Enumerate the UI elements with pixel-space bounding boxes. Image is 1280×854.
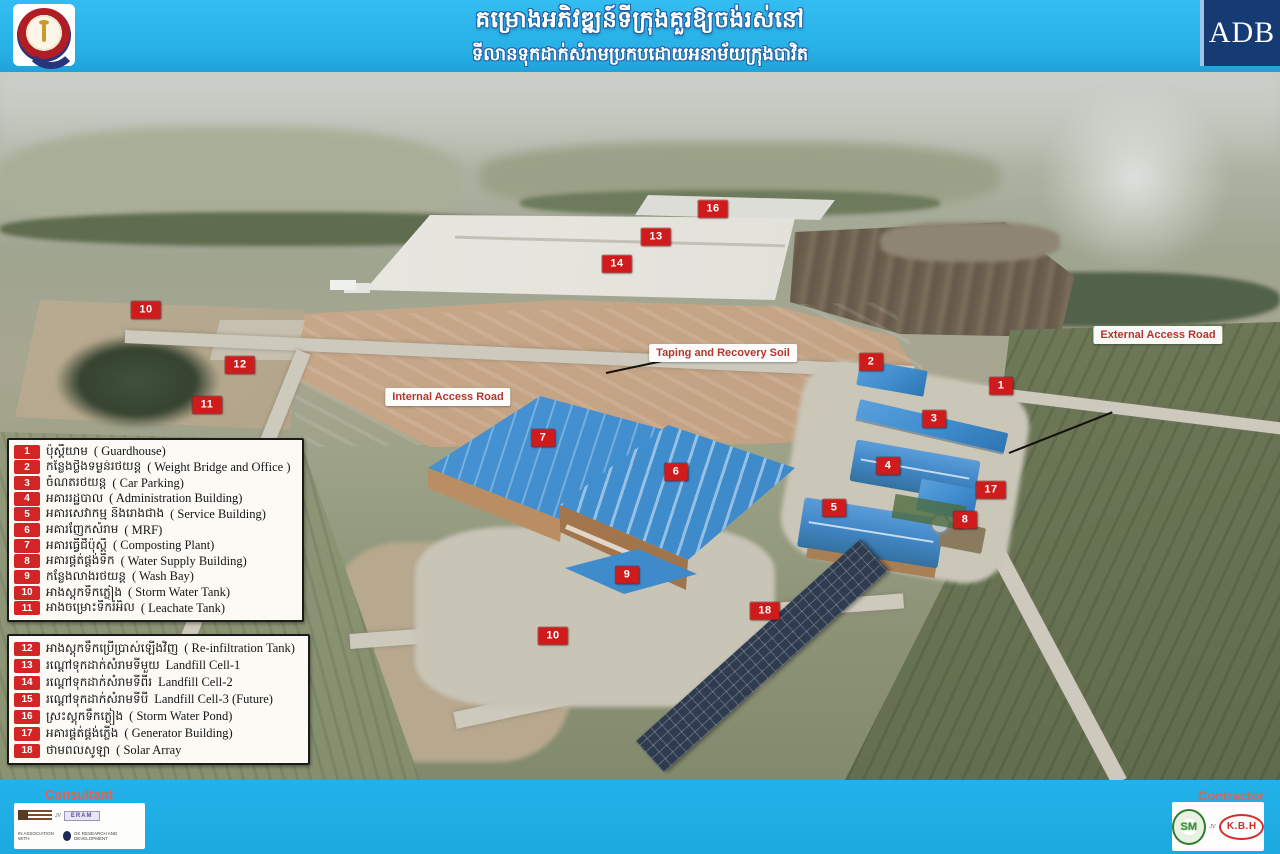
- contractor-logo-kbh: K.B.H: [1219, 814, 1264, 840]
- sm-logo-text: SM: [1181, 821, 1198, 833]
- legend-number-badge: 16: [14, 710, 40, 724]
- legend-number-badge: 15: [14, 693, 40, 707]
- footer-bar: Consultant JV ERAM IN ASSOCIATION WITH G…: [0, 780, 1280, 854]
- legend-khmer-text: អគារសេវាកម្ម និងរោងជាង: [46, 507, 164, 523]
- legend-item-15: 15រណ្តៅទុកដាក់សំរាមទីបីLandfill Cell-3 (…: [14, 691, 303, 708]
- legend-khmer-text: អគារផ្គត់ផ្គង់ភ្លើង: [46, 725, 118, 742]
- marker-1: 1: [990, 378, 1013, 395]
- marker-11: 11: [193, 397, 222, 414]
- marker-10: 10: [538, 628, 567, 645]
- legend-khmer-text: អគាររដ្ឋបាល: [46, 491, 103, 507]
- partner-circle-logo: [63, 831, 72, 841]
- legend-number-badge: 12: [14, 642, 40, 656]
- legend-number-badge: 1: [14, 445, 40, 459]
- legend-english-text: ( Wash Bay): [132, 569, 194, 584]
- jv-text: JV: [55, 813, 61, 819]
- label-taping-recovery-soil: Taping and Recovery Soil: [649, 344, 797, 362]
- legend-item-16: 16ស្រះស្តុកទឹកភ្លៀង( Storm Water Pond): [14, 708, 303, 725]
- legend-item-3: 3ចំណតរថយន្ត( Car Parking): [14, 475, 297, 491]
- poster-page: គម្រោងអភិវឌ្ឍន៍ទីក្រុងគួរឱ្យចង់រស់នៅ ទីល…: [0, 0, 1280, 854]
- marker-4: 4: [877, 458, 900, 475]
- legend-item-7: 7អគារធ្វើជីប៉ុស្តិ៍( Composting Plant): [14, 538, 297, 554]
- legend-item-12: 12អាងស្តុកទឹកប្រើប្រាស់ឡើងវិញ( Re-infilt…: [14, 640, 303, 657]
- legend-english-text: ( Weight Bridge and Office ): [147, 460, 290, 475]
- legend-khmer-text: អគារផ្គត់ផ្គង់ទឹក: [46, 553, 115, 569]
- marker-9: 9: [616, 567, 639, 584]
- legend-english-text: ( MRF): [124, 523, 162, 538]
- legend-khmer-text: ប៉ុស្តិ៍យាម: [46, 444, 88, 460]
- waste-dump-light-patch: [880, 222, 1060, 262]
- legend-box-1: 1ប៉ុស្តិ៍យាម( Guardhouse)2កន្លែងថ្លឹងទម្…: [7, 438, 304, 622]
- legend-english-text: ( Leachate Tank): [141, 601, 225, 616]
- label-internal-access-road: Internal Access Road: [385, 388, 510, 406]
- legend-number-badge: 17: [14, 727, 40, 741]
- legend-number-badge: 18: [14, 744, 40, 758]
- legend-khmer-text: អាងស្តុកទឹកភ្លៀង: [46, 585, 122, 601]
- legend-khmer-text: អាងចម្រោះទឹករំអិល: [46, 600, 135, 616]
- legend-number-badge: 14: [14, 676, 40, 690]
- legend-english-text: ( Service Building): [170, 507, 266, 522]
- legend-english-text: ( Guardhouse): [94, 444, 166, 459]
- legend-khmer-text: អគារញែកសំរាម: [46, 522, 118, 538]
- consultant-logos-box: JV ERAM IN ASSOCIATION WITH GK RESEARCH …: [14, 803, 145, 849]
- legend-number-badge: 11: [14, 601, 40, 615]
- legend-english-text: ( Solar Array: [116, 743, 181, 758]
- legend-item-6: 6អគារញែកសំរាម( MRF): [14, 522, 297, 538]
- legend-item-5: 5អគារសេវាកម្ម និងរោងជាង( Service Buildin…: [14, 507, 297, 523]
- marker-17: 17: [976, 482, 1005, 499]
- legend-item-8: 8អគារផ្គត់ផ្គង់ទឹក( Water Supply Buildin…: [14, 553, 297, 569]
- legend-khmer-text: កន្លែងលាងរថយន្ត: [46, 569, 126, 585]
- legend-item-9: 9កន្លែងលាងរថយន្ត( Wash Bay): [14, 569, 297, 585]
- header-bar: គម្រោងអភិវឌ្ឍន៍ទីក្រុងគួរឱ្យចង់រស់នៅ ទីល…: [0, 0, 1280, 72]
- legend-khmer-text: រណ្តៅទុកដាក់សំរាមទីបី: [46, 691, 148, 708]
- legend-number-badge: 6: [14, 523, 40, 537]
- legend-english-text: ( Composting Plant): [113, 538, 214, 553]
- legend-number-badge: 2: [14, 460, 40, 474]
- legend-english-text: Landfill Cell-3 (Future): [154, 692, 273, 707]
- legend-english-text: ( Storm Water Tank): [128, 585, 230, 600]
- legend-item-18: 18ថាមពលសូឡា( Solar Array: [14, 742, 303, 759]
- legend-item-10: 10អាងស្តុកទឹកភ្លៀង( Storm Water Tank): [14, 585, 297, 601]
- legend-item-17: 17អគារផ្គត់ផ្គង់ភ្លើង( Generator Buildin…: [14, 725, 303, 742]
- legend-english-text: ( Re-infiltration Tank): [184, 641, 295, 656]
- label-external-access-road: External Access Road: [1093, 326, 1222, 344]
- legend-number-badge: 8: [14, 554, 40, 568]
- smoke-plume: [1040, 82, 1230, 272]
- contractor-label: Contractor: [1198, 788, 1264, 803]
- legend-number-badge: 4: [14, 492, 40, 506]
- legend-english-text: ( Car Parking): [112, 476, 184, 491]
- legend-box-2: 12អាងស្តុកទឹកប្រើប្រាស់ឡើងវិញ( Re-infilt…: [7, 634, 310, 765]
- title-line2: ទីលានទុកដាក់សំរាមប្រកបដោយអនាម័យក្រុងបាវិ…: [0, 42, 1280, 69]
- legend-khmer-text: ចំណតរថយន្ត: [46, 475, 106, 491]
- contractor-logos-box: SM JV K.B.H: [1172, 802, 1264, 851]
- marker-6: 6: [665, 464, 688, 481]
- marker-16: 16: [698, 201, 727, 218]
- legend-khmer-text: រណ្តៅទុកដាក់សំរាមទីពីរ: [46, 674, 152, 691]
- legend-khmer-text: កន្លែងថ្លឹងទម្ងន់រថយន្ត: [46, 460, 141, 476]
- marker-12: 12: [225, 357, 254, 374]
- legend-english-text: ( Storm Water Pond): [129, 709, 232, 724]
- legend-number-badge: 13: [14, 659, 40, 673]
- small-structures: [330, 280, 356, 290]
- legend-number-badge: 5: [14, 507, 40, 521]
- adb-logo: ADB: [1200, 0, 1280, 66]
- legend-number-badge: 9: [14, 570, 40, 584]
- legend-item-13: 13រណ្តៅទុកដាក់សំរាមទីមួយLandfill Cell-1: [14, 657, 303, 674]
- consultant-logos-row2: IN ASSOCIATION WITH GK RESEARCH AND DEVE…: [18, 826, 141, 846]
- legend-number-badge: 3: [14, 476, 40, 490]
- contractor-logo-sm: SM: [1172, 809, 1206, 845]
- marker-7: 7: [532, 430, 555, 447]
- legend-english-text: Landfill Cell-1: [166, 658, 241, 673]
- project-titles: គម្រោងអភិវឌ្ឍន៍ទីក្រុងគួរឱ្យចង់រស់នៅ ទីល…: [0, 6, 1280, 69]
- legend-item-1: 1ប៉ុស្តិ៍យាម( Guardhouse): [14, 444, 297, 460]
- tree-clump: [55, 334, 220, 429]
- partner-name-text: GK RESEARCH AND DEVELOPMENT: [74, 831, 141, 841]
- marker-2: 2: [860, 354, 883, 371]
- legend-item-14: 14រណ្តៅទុកដាក់សំរាមទីពីរLandfill Cell-2: [14, 674, 303, 691]
- marker-13: 13: [641, 229, 670, 246]
- legend-item-11: 11អាងចម្រោះទឹករំអិល( Leachate Tank): [14, 600, 297, 616]
- consultant-logo-1: [18, 810, 52, 822]
- legend-khmer-text: អគារធ្វើជីប៉ុស្តិ៍: [46, 538, 107, 554]
- marker-10: 10: [131, 302, 160, 319]
- legend-khmer-text: អាងស្តុកទឹកប្រើប្រាស់ឡើងវិញ: [46, 640, 178, 657]
- consultant-logo-2: ERAM: [64, 811, 100, 821]
- legend-khmer-text: ស្រះស្តុកទឹកភ្លៀង: [46, 708, 123, 725]
- legend-english-text: Landfill Cell-2: [158, 675, 233, 690]
- marker-14: 14: [602, 256, 631, 273]
- kbh-logo-text: K.B.H: [1227, 821, 1257, 832]
- association-text: IN ASSOCIATION WITH: [18, 831, 60, 841]
- legend-english-text: ( Generator Building): [124, 726, 232, 741]
- legend-khmer-text: រណ្តៅទុកដាក់សំរាមទីមួយ: [46, 657, 160, 674]
- marker-18: 18: [750, 603, 779, 620]
- adb-logo-text: ADB: [1209, 16, 1275, 50]
- legend-khmer-text: ថាមពលសូឡា: [46, 742, 110, 759]
- legend-number-badge: 10: [14, 586, 40, 600]
- title-line1: គម្រោងអភិវឌ្ឍន៍ទីក្រុងគួរឱ្យចង់រស់នៅ: [0, 6, 1280, 39]
- consultant-label: Consultant: [45, 787, 113, 802]
- consultant-logos-row1: JV ERAM: [18, 806, 141, 826]
- legend-item-2: 2កន្លែងថ្លឹងទម្ងន់រថយន្ត( Weight Bridge …: [14, 460, 297, 476]
- legend-english-text: ( Administration Building): [109, 491, 242, 506]
- legend-number-badge: 7: [14, 539, 40, 553]
- marker-8: 8: [954, 512, 977, 529]
- legend-item-4: 4អគាររដ្ឋបាល( Administration Building): [14, 491, 297, 507]
- marker-3: 3: [923, 411, 946, 428]
- legend-english-text: ( Water Supply Building): [121, 554, 247, 569]
- marker-5: 5: [823, 500, 846, 517]
- contractor-jv-text: JV: [1210, 824, 1216, 830]
